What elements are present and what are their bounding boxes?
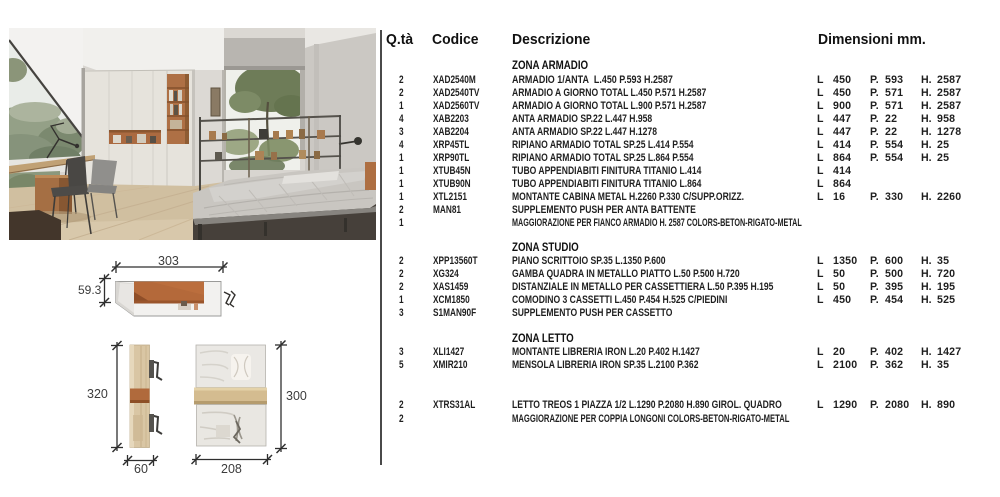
svg-text:320: 320	[87, 387, 108, 401]
svg-text:300: 300	[286, 389, 307, 403]
svg-text:59.3: 59.3	[78, 283, 102, 297]
svg-text:60: 60	[134, 462, 148, 476]
svg-text:303: 303	[158, 254, 179, 268]
svg-text:208: 208	[221, 462, 242, 476]
